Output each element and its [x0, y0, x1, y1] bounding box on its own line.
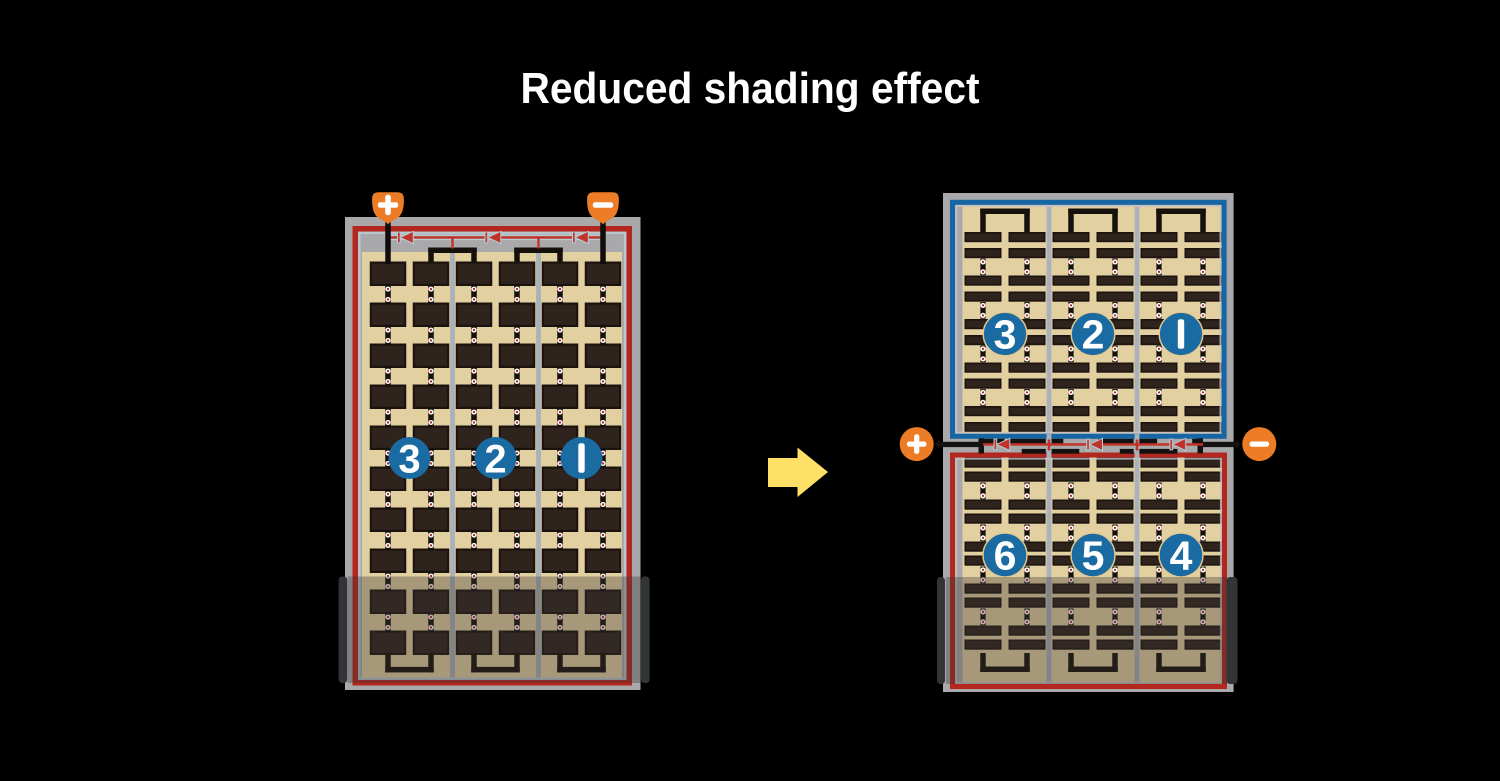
svg-text:2: 2 — [484, 437, 506, 481]
svg-text:5: 5 — [1082, 532, 1105, 578]
svg-text:3: 3 — [398, 437, 420, 481]
svg-text:2: 2 — [1082, 311, 1105, 357]
svg-text:4: 4 — [1170, 532, 1193, 578]
svg-text:3: 3 — [994, 311, 1017, 357]
svg-text:Reduced shading effect: Reduced shading effect — [521, 65, 980, 113]
svg-text:6: 6 — [994, 532, 1017, 578]
